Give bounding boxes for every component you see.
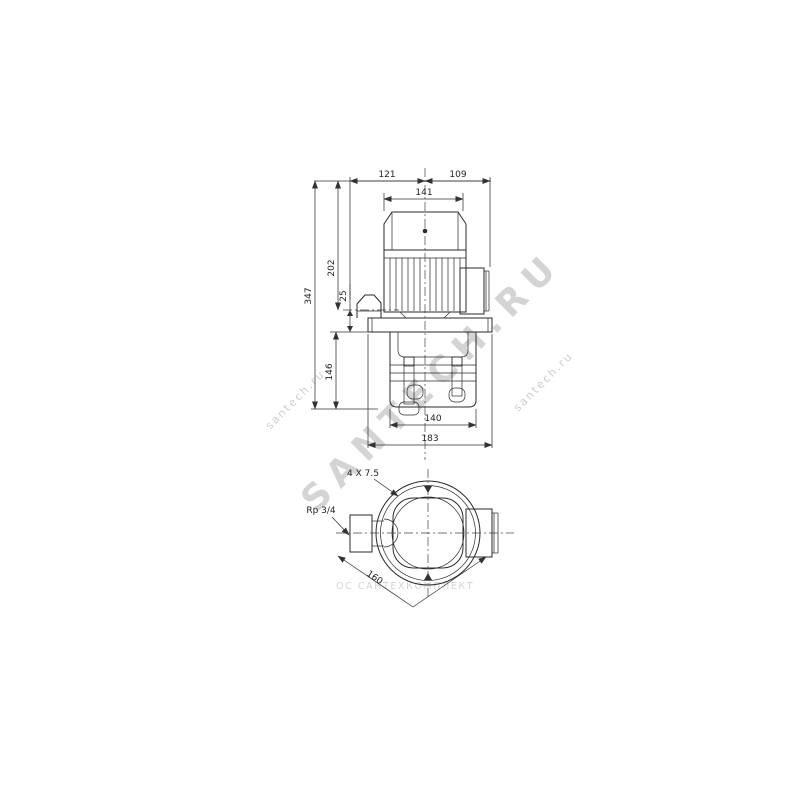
pump-dimensional-drawing-page: SANTECH.RU santech.ru santech.ru ОС САНТ… bbox=[0, 0, 800, 800]
watermark-small-left: santech.ru bbox=[263, 367, 328, 432]
watermark-company: ОС САНТЕХКОМПЛЕКТ bbox=[336, 581, 474, 592]
technical-drawing: SANTECH.RU santech.ru santech.ru ОС САНТ… bbox=[0, 0, 800, 800]
dim-347-label: 347 bbox=[304, 287, 314, 304]
holes-label: 4 X 7.5 bbox=[347, 469, 379, 479]
dim-140-label: 140 bbox=[424, 414, 441, 424]
lifting-eye-dot bbox=[423, 229, 428, 234]
watermark-large: SANTECH.RU bbox=[293, 244, 570, 521]
dim-25-label: 25 bbox=[339, 290, 349, 301]
dim-183-label: 183 bbox=[421, 434, 438, 444]
watermark-small-right: santech.ru bbox=[511, 349, 576, 414]
dim-141-label: 141 bbox=[415, 188, 432, 198]
dim-202-label: 202 bbox=[327, 259, 337, 276]
inlet-thread-label: Rp 3/4 bbox=[306, 506, 336, 516]
inlet-port bbox=[350, 515, 398, 552]
dim-146-label: 146 bbox=[325, 363, 335, 380]
dim-109-label: 109 bbox=[449, 170, 466, 180]
dim-121-label: 121 bbox=[378, 170, 395, 180]
